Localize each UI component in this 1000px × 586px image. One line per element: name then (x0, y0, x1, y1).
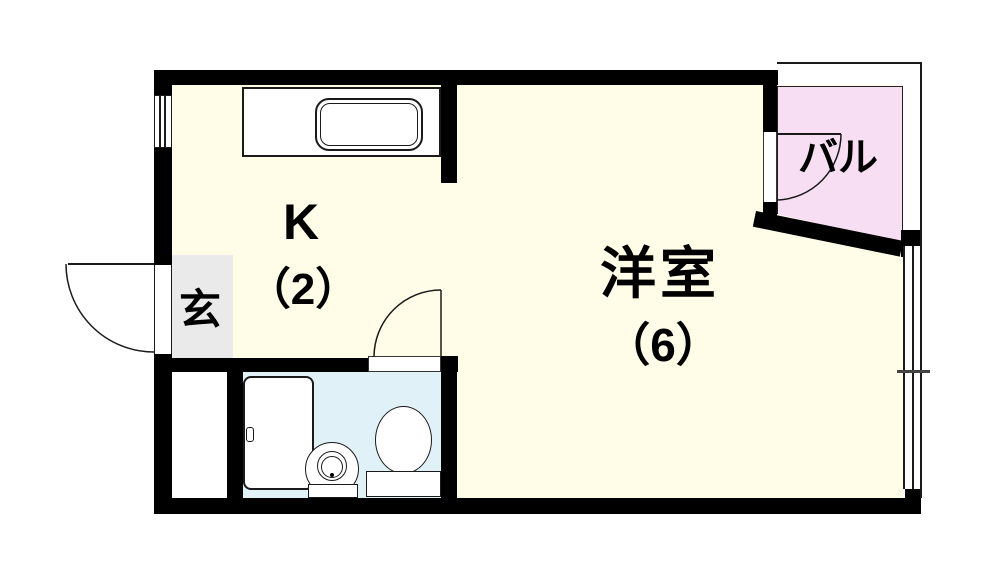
window-left-icon (154, 95, 172, 148)
washbasin-faucet-dot (330, 473, 334, 477)
kitchen-label: K (283, 197, 319, 247)
window-right-mullion (912, 246, 914, 489)
wall-closet-divider (227, 372, 243, 498)
balcony-label: バル (798, 138, 878, 178)
wall-balcony-west-upper (763, 85, 777, 132)
wall-south (154, 498, 921, 514)
window-left-mullion (164, 96, 166, 147)
balcony-rail-top-line (777, 62, 922, 64)
toilet-tank (366, 471, 441, 497)
western-room-size-label: （6） (604, 322, 722, 368)
wall-kitchen-divider (441, 85, 457, 183)
wall-west-middle (154, 148, 172, 265)
wall-north (154, 70, 778, 85)
bathroom-door-opening (368, 356, 441, 372)
outer-wall-line-east (920, 62, 922, 498)
wall-bathroom-door-hinge (441, 356, 458, 372)
balcony-door-opening (763, 132, 777, 202)
entrance-label: 玄 (179, 289, 221, 331)
window-left-mullion (159, 96, 161, 147)
wall-southeast-corner (905, 489, 921, 505)
window-right-icon (903, 246, 920, 489)
washbasin-base (308, 484, 358, 498)
wall-west-lower (154, 354, 172, 514)
wall-bathroom-east (441, 372, 457, 498)
wall-west-upper (154, 70, 172, 95)
wall-entrance-south (154, 358, 368, 372)
entrance-door-arc (66, 264, 154, 352)
floor-plan-canvas: K （2） 洋室 （6） 玄 バル (0, 0, 1000, 586)
window-right-sash-tick (897, 370, 930, 373)
western-room-label: 洋室 (600, 246, 720, 302)
entrance-door-opening (154, 265, 172, 354)
toilet-icon (375, 406, 432, 474)
kitchen-sink-basin (320, 103, 418, 146)
bathtub-handle (246, 427, 254, 442)
kitchen-size-label: （2） (247, 268, 359, 312)
